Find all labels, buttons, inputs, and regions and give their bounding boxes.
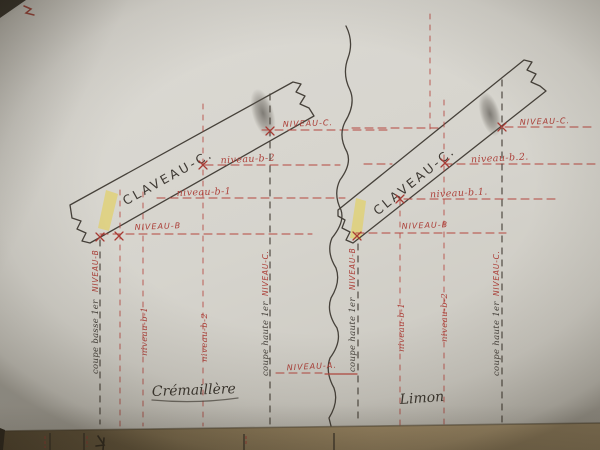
right-proj-b1-label: niveau-b-1 — [397, 303, 407, 352]
right-cut-low-label-red: NIVEAU-B — [348, 247, 357, 290]
right-cut-low-label-ink: coupe haute 1er — [348, 297, 358, 372]
photo-corner-shadow — [0, 0, 26, 18]
left-cut-high-label-red: NIVEAU-C. — [261, 250, 270, 296]
left-diagram: CLAVEAU-C. NIVEAU-C. niveau-b-2 niveau-b… — [70, 82, 392, 428]
left-proj-b2-label: niveau-b-2 — [200, 313, 210, 362]
right-yellow-joint-highlight — [350, 198, 366, 240]
left-cut-high-label-ink: coupe haute 1er — [261, 301, 271, 376]
right-caption: Limon — [398, 389, 445, 408]
right-cut-high-label-red: NIVEAU-C. — [492, 250, 501, 296]
left-niveau-b2-label: niveau-b-2 — [220, 153, 275, 167]
drawing-canvas: CLAVEAU-C. NIVEAU-C. niveau-b-2 niveau-b… — [0, 0, 600, 450]
right-niveau-b1-label: niveau-b.1. — [430, 187, 488, 201]
left-caption: Crémaillère — [152, 381, 237, 400]
photo-artifacts — [0, 0, 600, 450]
left-proj-b1-label: niveau-b-1 — [140, 307, 150, 356]
left-yellow-joint-highlight — [98, 190, 118, 231]
right-cut-high-label-ink: coupe haute 1er — [492, 301, 502, 376]
right-niveau-b2-label: niveau-b.2. — [471, 152, 529, 166]
right-claveau-label: CLAVEAU-C. — [370, 143, 458, 218]
left-cut-low-label-red: NIVEAU-B — [91, 249, 100, 292]
right-niveau-b-label: NIVEAU-B — [401, 220, 448, 231]
left-niveau-b-label: NIVEAU-B — [134, 221, 181, 232]
left-niveau-b1-label: niveau-b-1 — [176, 186, 231, 199]
right-proj-b2-label: niveau-b-2 — [440, 293, 450, 342]
right-niveau-c-label: NIVEAU-C. — [520, 116, 571, 127]
right-niveau-c-line — [352, 127, 596, 128]
red-corner-mark — [24, 6, 34, 15]
break-line-group: NIVEAU-A. — [276, 26, 357, 426]
left-cut-low-label-ink: coupe basse 1er — [91, 299, 101, 374]
stereotomy-drawing-photo: CLAVEAU-C. NIVEAU-C. niveau-b-2 niveau-b… — [0, 0, 600, 450]
niveau-a-label: NIVEAU-A. — [287, 361, 338, 373]
left-niveau-c-label: NIVEAU-C. — [283, 118, 334, 129]
left-charcoal-smudge — [246, 86, 281, 140]
right-diagram: CLAVEAU-C. NIVEAU-C. niveau-b.2. niveau-… — [338, 14, 597, 425]
